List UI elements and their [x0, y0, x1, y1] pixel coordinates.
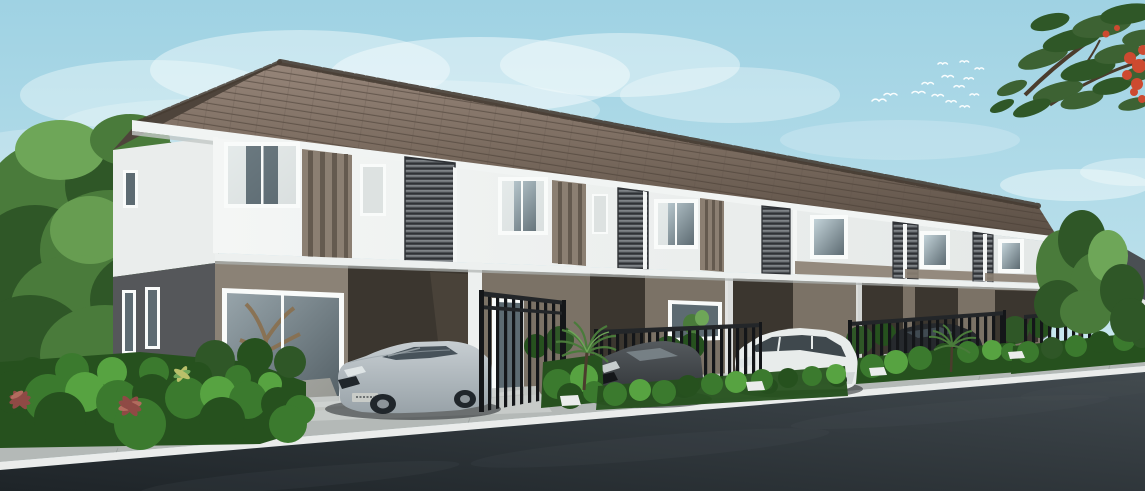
corner-trim	[213, 137, 218, 254]
side-window-glass	[125, 293, 133, 351]
accent-stripe	[332, 153, 337, 258]
hedge-bump	[701, 373, 723, 395]
hedge-bump	[199, 397, 245, 443]
hedge-bump	[725, 371, 747, 393]
accent-stripe	[308, 151, 313, 257]
back-shrub	[274, 346, 306, 378]
vent-window-glass	[363, 167, 383, 213]
window-mullion	[675, 203, 677, 245]
hedge-bump	[629, 379, 651, 401]
cloud	[780, 120, 1020, 160]
window-glass	[1002, 243, 1020, 269]
louver-screen	[405, 157, 455, 270]
flame-flower	[1114, 25, 1120, 31]
curtain	[658, 203, 668, 245]
wheel-hub	[377, 400, 389, 409]
pilaster-trim	[453, 167, 457, 262]
fence-post	[479, 290, 484, 412]
curtain	[278, 146, 296, 204]
townhouse-render	[0, 0, 1145, 491]
hedge-bump	[778, 368, 798, 388]
window-glass	[814, 219, 844, 255]
scene-canvas	[0, 0, 1145, 491]
accent-stripe	[705, 200, 708, 270]
side-window-glass	[148, 290, 157, 346]
curb-block	[1008, 351, 1025, 359]
flame-flower	[1130, 88, 1138, 96]
accent-stripe	[320, 152, 325, 258]
cloud	[620, 67, 840, 123]
accent-stripe	[712, 200, 715, 270]
palm-trunk	[951, 346, 952, 372]
accent-stripe	[344, 154, 348, 258]
window-mullion	[261, 146, 264, 204]
wheel-hub	[460, 395, 470, 403]
window-mullion	[521, 181, 523, 231]
hedge-bump	[826, 364, 846, 384]
hedge-bump	[982, 340, 1002, 360]
hedge-bump	[802, 366, 822, 386]
hedge-bump	[908, 346, 932, 370]
window-plant	[695, 310, 709, 326]
curtain	[536, 181, 544, 231]
hedge-bump	[652, 380, 676, 404]
hedge-bump	[1041, 337, 1063, 359]
fence-post	[759, 322, 762, 376]
window-glass	[924, 235, 946, 265]
flame-flower	[1103, 31, 1110, 38]
hedge-bump	[1089, 331, 1111, 353]
hedge-bump	[1065, 335, 1087, 357]
vent-window-glass	[594, 196, 606, 232]
accent-stripe	[578, 184, 582, 265]
pilaster-trim	[643, 191, 647, 269]
accent-stripe	[568, 183, 572, 264]
tree-canopy	[15, 120, 105, 180]
accent-stripe	[558, 182, 562, 264]
curtain	[502, 181, 514, 231]
hedge-bump	[34, 392, 86, 444]
curb-block	[869, 367, 887, 376]
hedge-bump	[603, 382, 627, 406]
curb-block	[560, 395, 581, 406]
flame-flower	[1122, 70, 1132, 80]
curb-block	[746, 381, 765, 391]
hedge-bump	[677, 375, 699, 397]
side-window-glass	[126, 173, 135, 205]
curtain	[228, 146, 246, 204]
hedge-bump	[269, 405, 307, 443]
hedge-bump	[884, 350, 908, 374]
accent-stripe	[719, 201, 722, 271]
